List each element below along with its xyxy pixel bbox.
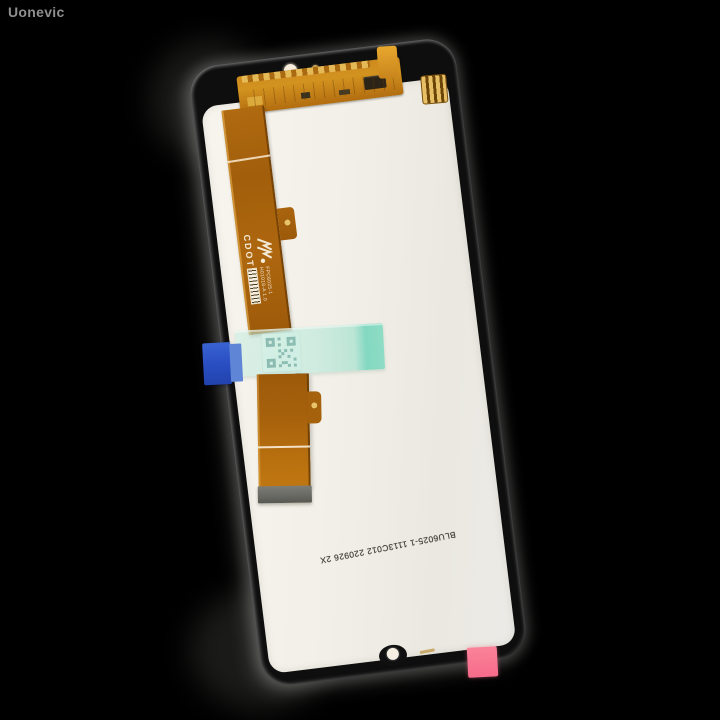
tape-pull-tab [202, 341, 246, 385]
flex-crease-line [228, 154, 271, 163]
gold-hole [311, 402, 317, 408]
tape-pull-tab-light [229, 343, 243, 382]
pink-sticker-tab [467, 646, 499, 678]
smd-component [339, 89, 351, 95]
gold-connector-pads [420, 74, 448, 105]
photo-stage: Uonevic CDOT [0, 0, 720, 720]
flex-wrap-tab [377, 45, 399, 78]
tape-pull-tab-dark [202, 342, 232, 385]
flex-cable-ribbon-lower [257, 374, 311, 489]
teal-tape-strip [235, 323, 385, 377]
smd-component [301, 92, 311, 99]
watermark-text: Uonevic [8, 4, 65, 20]
connector-stiffener [258, 485, 312, 503]
lcd-assembly: CDOT FPC6025-1 H01018-A 1.0 [187, 36, 529, 688]
flex-cable-lower [257, 373, 325, 506]
